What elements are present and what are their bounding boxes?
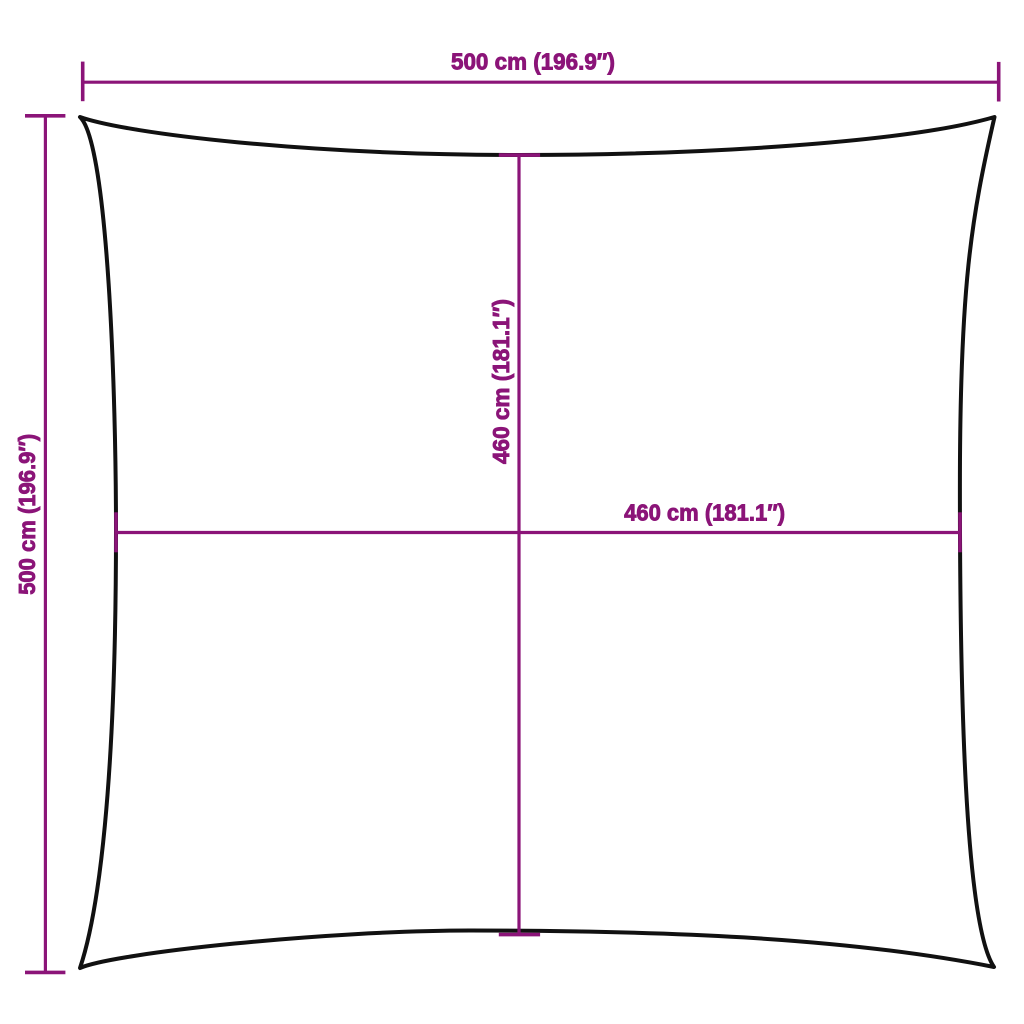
svg-text:460 cm (181.1″): 460 cm (181.1″) bbox=[624, 500, 785, 526]
svg-text:460 cm (181.1″): 460 cm (181.1″) bbox=[488, 299, 514, 464]
svg-text:500 cm (196.9″): 500 cm (196.9″) bbox=[451, 48, 615, 74]
svg-text:500 cm (196.9″): 500 cm (196.9″) bbox=[14, 434, 40, 595]
